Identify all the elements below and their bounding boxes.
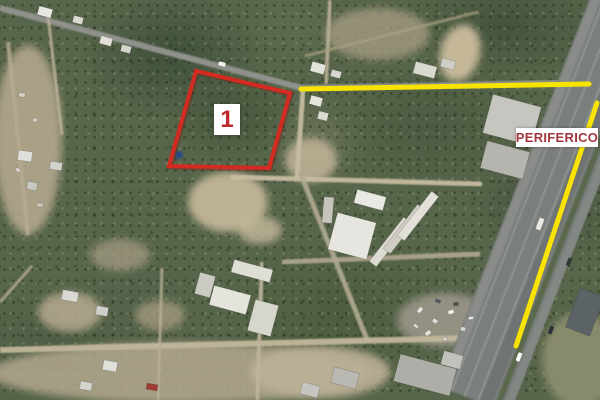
dirt-patch — [433, 20, 487, 86]
parcel-number: 1 — [220, 108, 233, 132]
satellite-map-image: 1 PERIFERICO — [0, 0, 600, 400]
building — [231, 260, 273, 283]
dirt-patch — [326, 8, 430, 60]
building — [26, 181, 37, 190]
dirt-patch — [238, 216, 282, 244]
building — [247, 299, 278, 336]
building — [72, 15, 83, 24]
debris — [19, 93, 26, 98]
periferico-road-label: PERIFERICO — [516, 128, 598, 147]
periferico-label-text: PERIFERICO — [516, 131, 598, 144]
building — [317, 111, 329, 121]
debris — [32, 117, 38, 122]
building — [397, 191, 439, 241]
building — [209, 285, 251, 314]
dirt-patch — [90, 239, 150, 271]
building — [102, 360, 118, 372]
building — [50, 161, 63, 171]
road — [0, 266, 32, 302]
building — [322, 197, 334, 224]
building — [17, 150, 32, 162]
map-feature-layer — [0, 0, 600, 400]
debris — [454, 303, 459, 306]
building — [354, 189, 387, 210]
building — [79, 381, 92, 391]
building — [120, 44, 131, 53]
building — [310, 61, 326, 74]
building — [309, 95, 323, 107]
debris — [468, 316, 473, 320]
debris — [37, 203, 43, 207]
road — [326, 0, 330, 84]
dirt-patch — [250, 346, 390, 398]
building — [95, 306, 108, 317]
road — [230, 177, 482, 184]
parcel-number-badge: 1 — [214, 104, 240, 135]
building — [330, 69, 341, 78]
debris — [460, 327, 466, 332]
building — [328, 212, 376, 259]
dirt-patch — [285, 138, 337, 182]
building — [413, 61, 437, 78]
